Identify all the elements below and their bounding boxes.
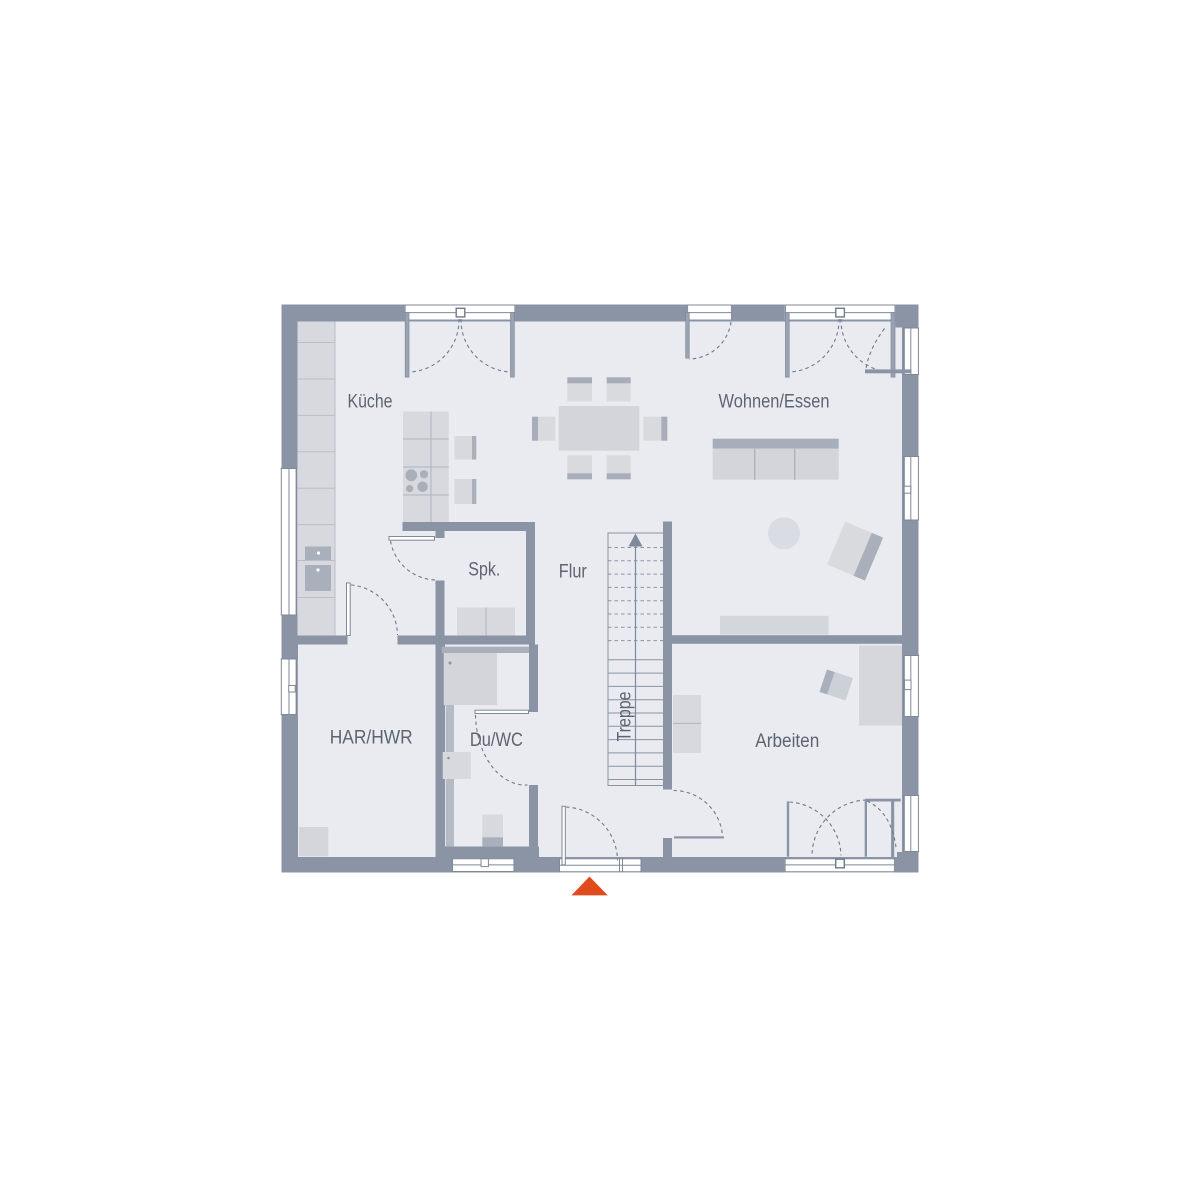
svg-text:Arbeiten: Arbeiten bbox=[755, 731, 819, 752]
svg-text:HAR/HWR: HAR/HWR bbox=[330, 728, 413, 749]
svg-text:Du/WC: Du/WC bbox=[470, 730, 523, 751]
svg-text:Flur: Flur bbox=[559, 562, 588, 583]
svg-text:Spk.: Spk. bbox=[468, 560, 500, 581]
svg-text:Treppe: Treppe bbox=[615, 692, 636, 742]
svg-text:Küche: Küche bbox=[348, 392, 393, 413]
svg-text:Wohnen/Essen: Wohnen/Essen bbox=[719, 392, 830, 413]
